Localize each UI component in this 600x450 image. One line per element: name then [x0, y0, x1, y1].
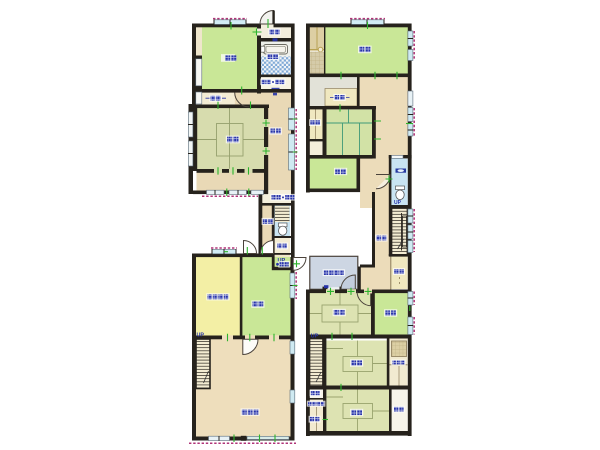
svg-text:UP: UP	[197, 332, 205, 338]
svg-text:UP: UP	[311, 334, 319, 340]
svg-text:UP: UP	[394, 200, 402, 206]
